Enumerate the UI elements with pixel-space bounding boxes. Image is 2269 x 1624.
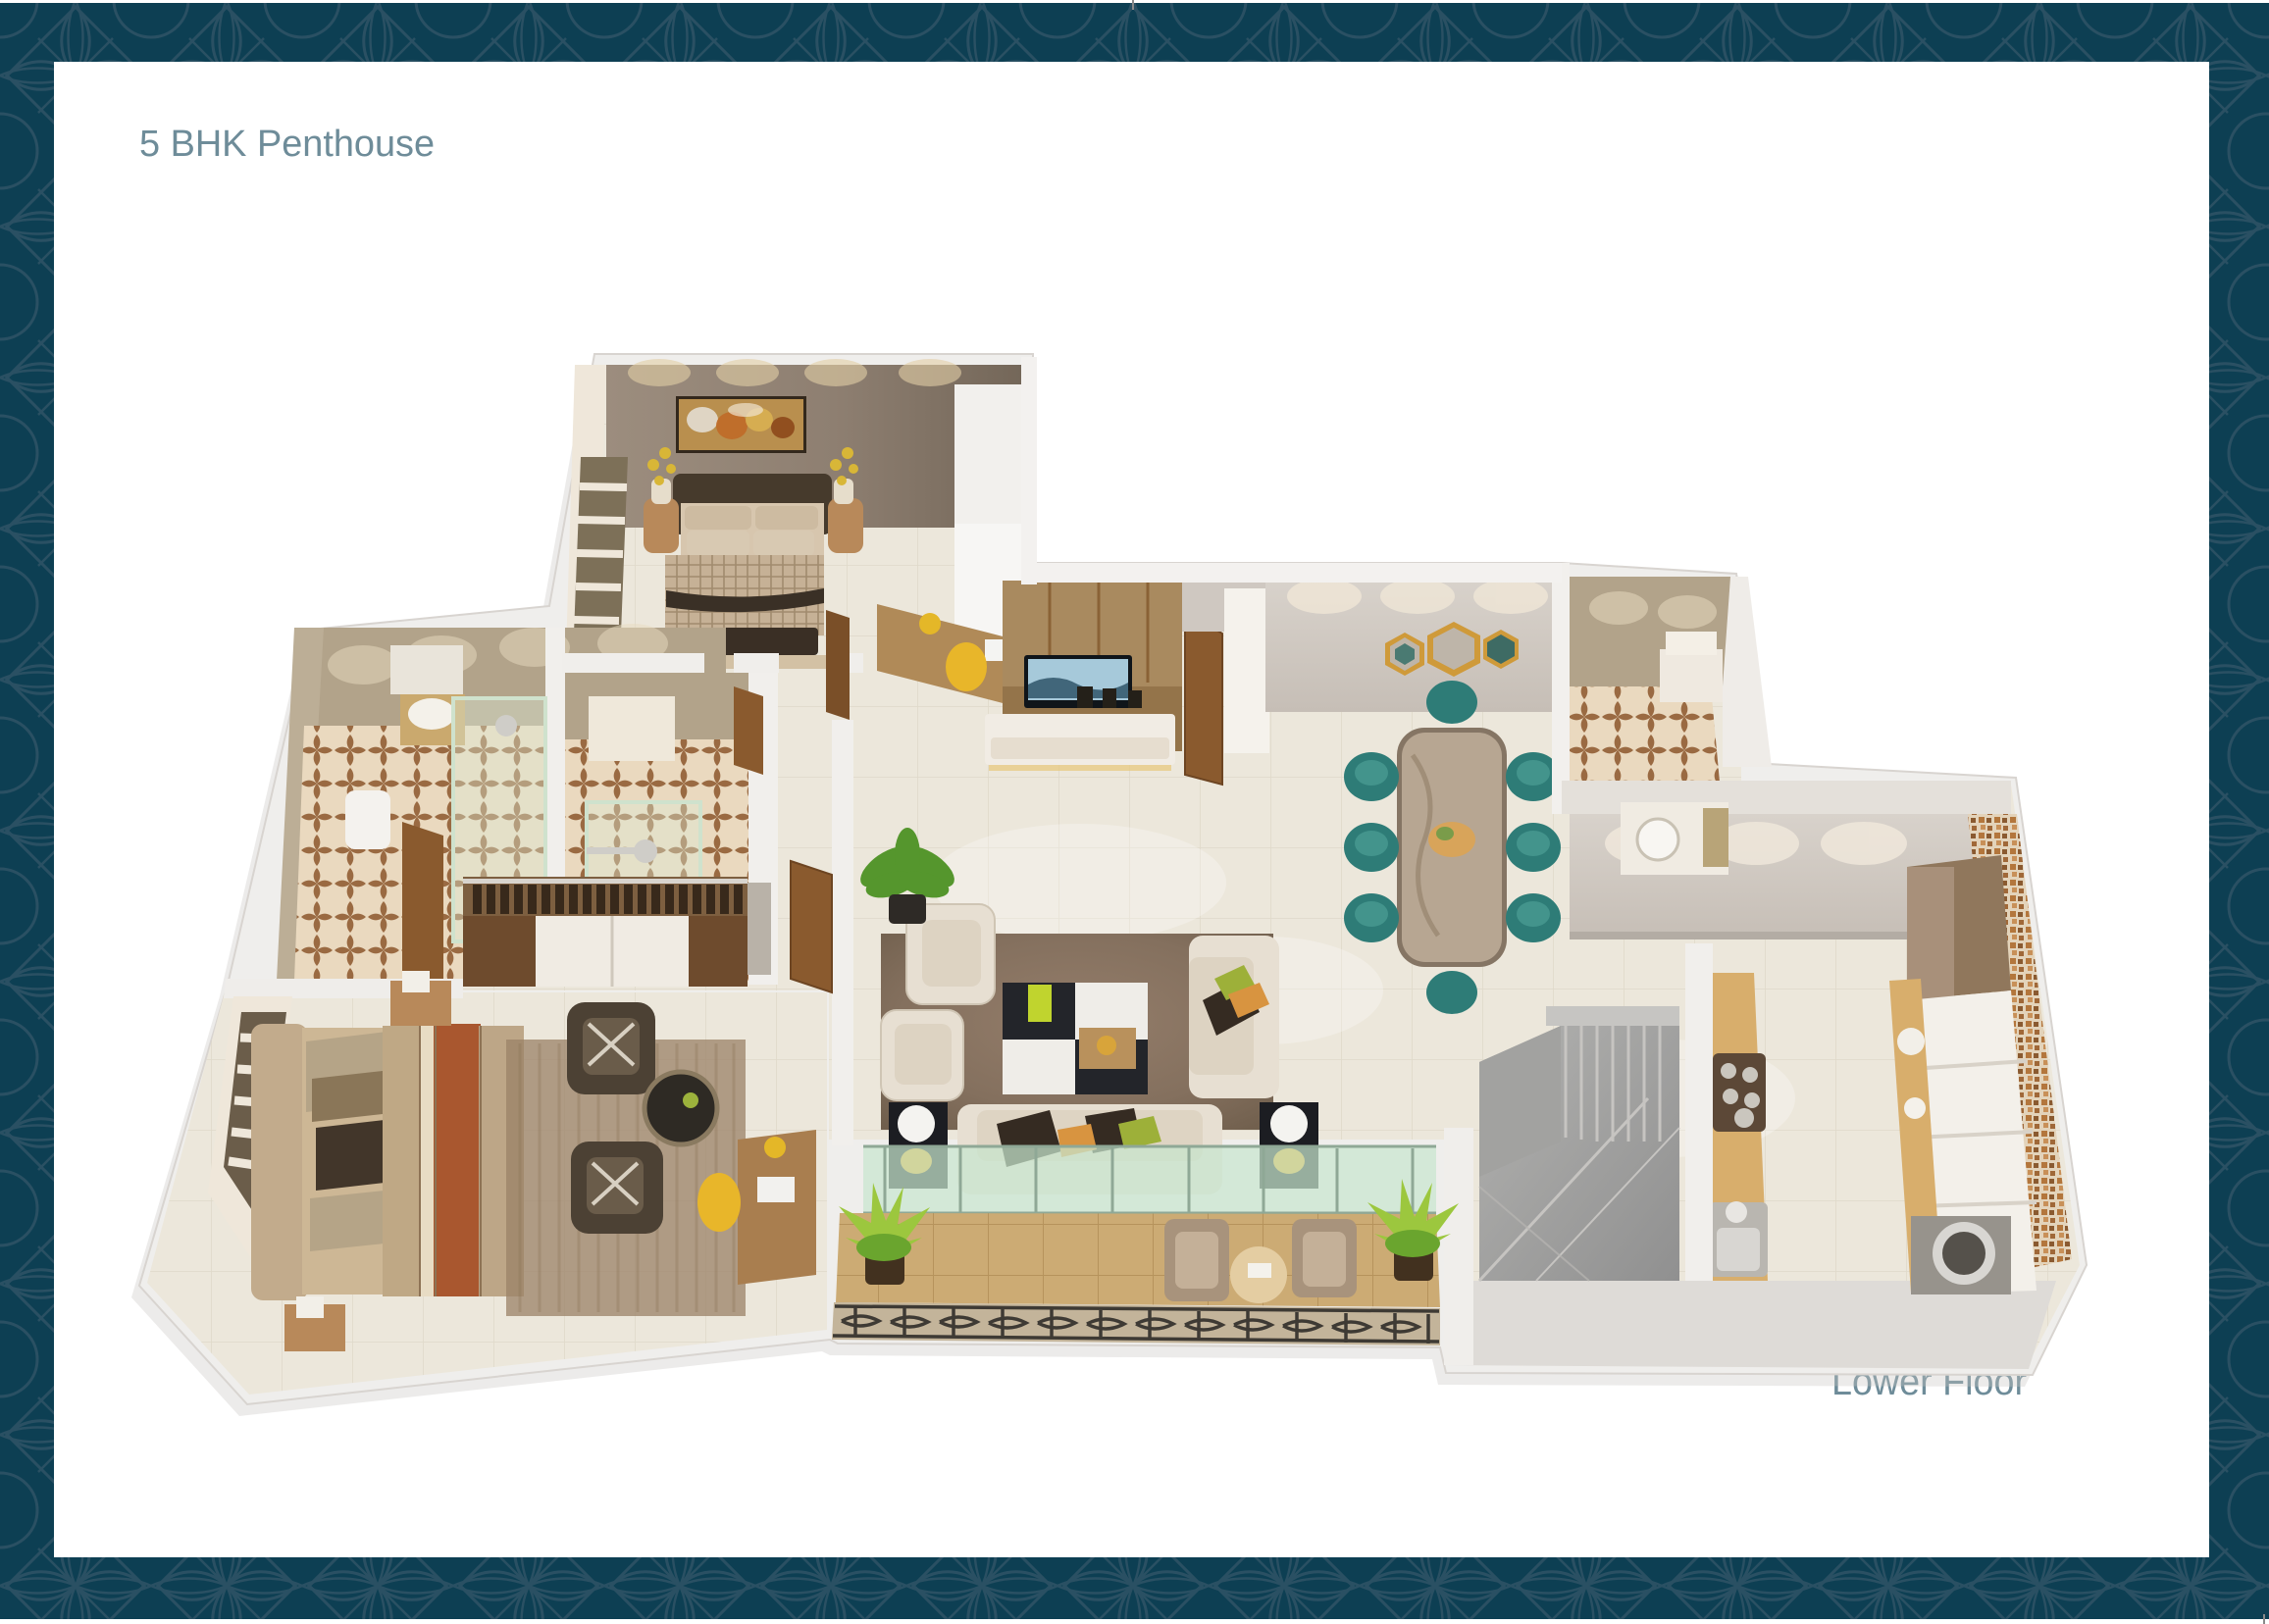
- svg-text:5 BHK Penthouse: 5 BHK Penthouse: [139, 124, 435, 165]
